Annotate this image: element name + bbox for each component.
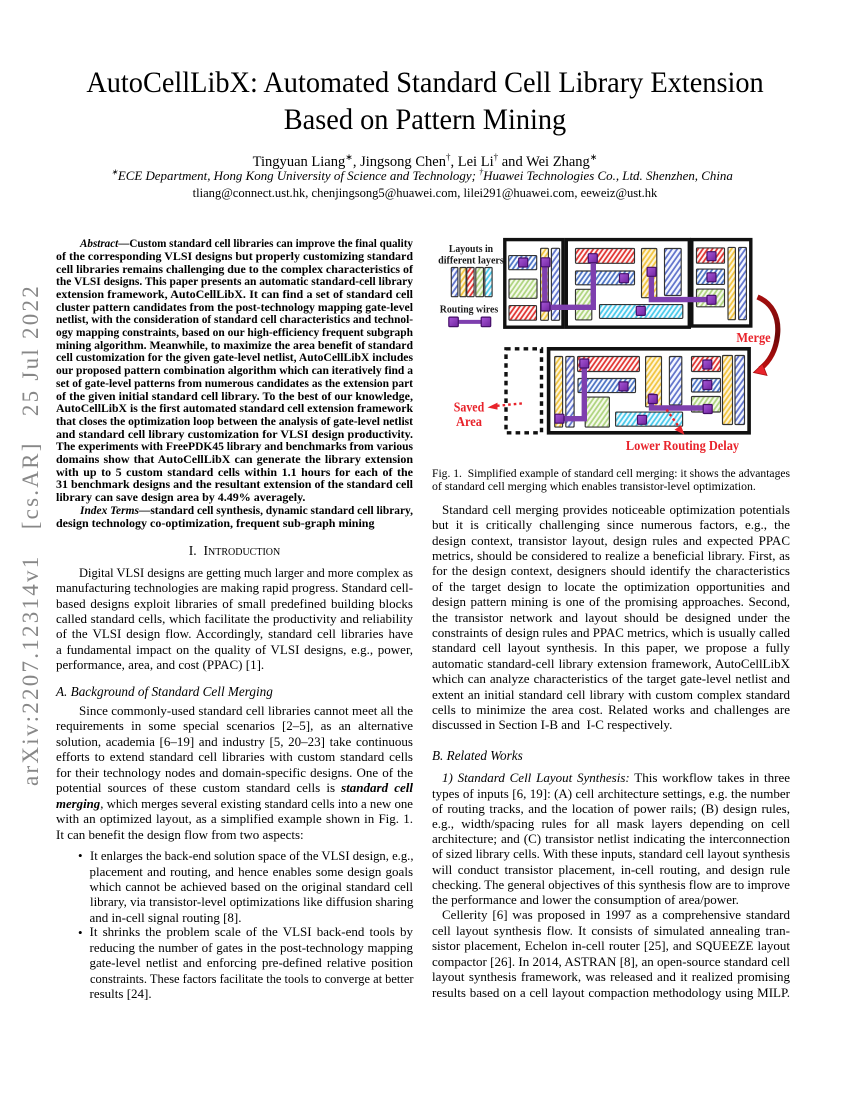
svg-text:Lower Routing Delay: Lower Routing Delay xyxy=(626,439,739,454)
svg-text:different layers: different layers xyxy=(438,255,504,266)
svg-text:Area: Area xyxy=(456,415,482,430)
svg-text:Merge: Merge xyxy=(736,331,770,346)
svg-text:Routing wires: Routing wires xyxy=(440,304,498,315)
svg-text:Saved: Saved xyxy=(454,400,485,415)
svg-text:Layouts in: Layouts in xyxy=(449,244,493,255)
